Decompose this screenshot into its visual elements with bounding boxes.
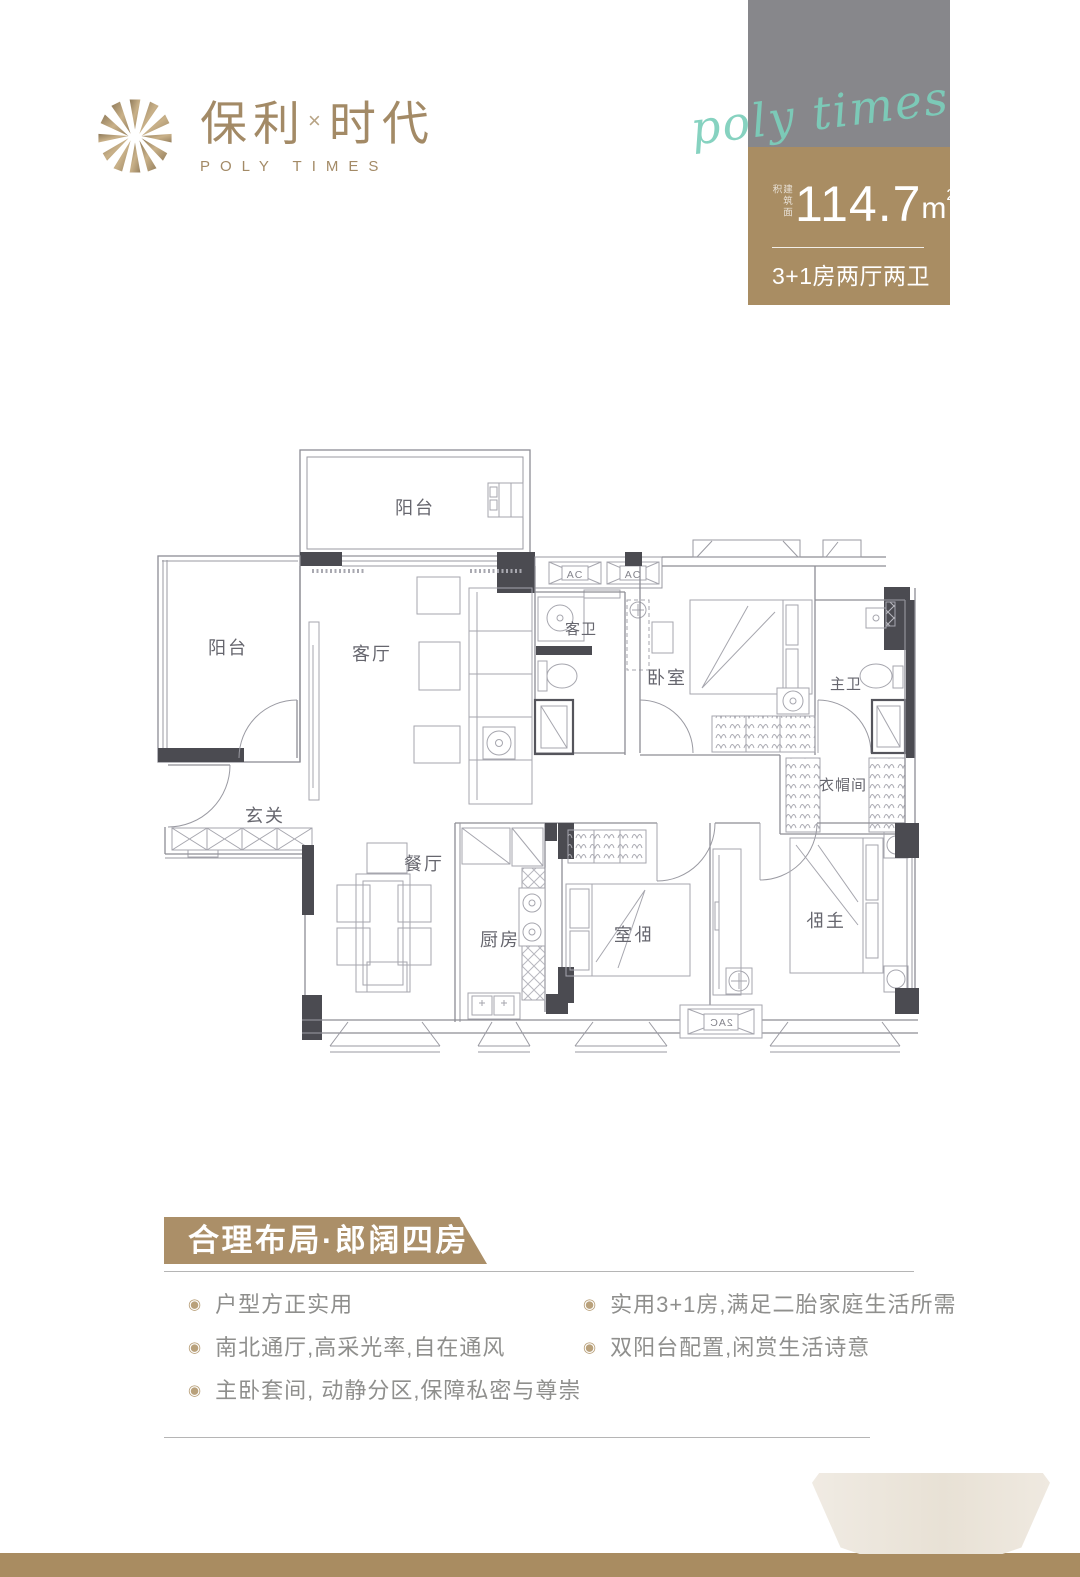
area-unit: m — [921, 176, 946, 242]
room-label-foyer: 玄关 — [245, 806, 285, 826]
bottom-wall: 2AC — [302, 1005, 918, 1052]
brand-zh-left: 保利 — [200, 97, 306, 150]
bullet-text: 实用3+1房,满足二胎家庭生活所需 — [610, 1292, 956, 1318]
brand-text: 保利×时代 POLY TIMES — [200, 93, 435, 175]
divider-line-bottom — [164, 1437, 870, 1438]
room-balcony-left: 阳台 — [158, 556, 300, 762]
room-living: 客厅 — [300, 566, 532, 804]
selling-points-right: ◉ 实用3+1房,满足二胎家庭生活所需 ◉ 双阳台配置,闲赏生活诗意 — [583, 1292, 983, 1378]
bullet-icon: ◉ — [188, 1378, 201, 1404]
room-foyer: 玄关 — [165, 765, 312, 858]
room-master-bedroom: 主卧 — [760, 823, 908, 992]
bullet-icon: ◉ — [583, 1335, 596, 1361]
ac-label-2: AC — [625, 569, 642, 581]
ac-label-1: AC — [567, 569, 584, 581]
room-label-bedroom-bottom: 卧室 — [612, 925, 652, 945]
area-row: 建筑面积 114.7 m 2 — [770, 176, 955, 242]
bullet-icon: ◉ — [188, 1292, 201, 1318]
bullet-text: 南北通厅,高采光率,自在通风 — [215, 1335, 505, 1361]
unit-spec: 3+1房两厅两卫 — [772, 257, 952, 291]
room-label-guest-bath: 客卫 — [565, 621, 597, 638]
brand-separator: × — [306, 108, 329, 133]
room-label-living: 客厅 — [352, 644, 392, 664]
selling-points-left: ◉ 户型方正实用 ◉ 南北通厅,高采光率,自在通风 ◉ 主卧套间, 动静分区,保… — [188, 1292, 568, 1421]
room-label-master-bath: 主卫 — [830, 676, 862, 693]
brand-name-en: POLY TIMES — [200, 158, 435, 175]
area-value: 114.7 — [795, 176, 921, 232]
room-kitchen: 厨房 — [455, 823, 568, 1022]
section-banner: 合理布局·郎阔四房 — [164, 1217, 487, 1264]
list-item: ◉ 实用3+1房,满足二胎家庭生活所需 — [583, 1292, 983, 1320]
room-closet: 衣帽间 — [780, 755, 905, 834]
room-label-dining: 餐厅 — [404, 854, 444, 874]
room-bedroom-bottom: 卧室 — [558, 823, 715, 1012]
room-bedroom-top: 卧室 — [625, 540, 910, 755]
brand-logo: 保利×时代 POLY TIMES — [92, 93, 435, 179]
bullet-text: 主卧套间, 动静分区,保障私密与尊崇 — [215, 1378, 581, 1404]
room-guest-bath: 客卫 — [535, 566, 673, 755]
brand-zh-right: 时代 — [329, 97, 435, 150]
starburst-icon — [92, 93, 178, 179]
poster-page: 保利×时代 POLY TIMES poly times 建筑面积 114.7 m… — [0, 0, 1080, 1577]
room-label-closet: 衣帽间 — [819, 777, 867, 794]
room-master-bath: 主卫 — [815, 600, 905, 753]
room-balcony-top: 阳台 — [300, 450, 530, 556]
room-label-kitchen: 厨房 — [480, 930, 520, 950]
bullet-text: 户型方正实用 — [215, 1292, 353, 1318]
section-title: 合理布局·郎阔四房 — [164, 1217, 487, 1264]
floor-plan-svg: 阳台 阳台 — [140, 420, 950, 1080]
list-item: ◉ 主卧套间, 动静分区,保障私密与尊崇 — [188, 1378, 568, 1406]
list-item: ◉ 双阳台配置,闲赏生活诗意 — [583, 1335, 983, 1363]
bullet-text: 双阳台配置,闲赏生活诗意 — [610, 1335, 870, 1361]
decorative-shape — [812, 1473, 1050, 1554]
list-item: ◉ 南北通厅,高采光率,自在通风 — [188, 1335, 568, 1363]
room-label-bedroom-top: 卧室 — [647, 668, 687, 688]
bullet-icon: ◉ — [583, 1292, 596, 1318]
room-label-balcony-top: 阳台 — [395, 498, 435, 518]
hallway-partition — [713, 849, 752, 995]
list-item: ◉ 户型方正实用 — [188, 1292, 568, 1320]
card-gray-panel — [748, 0, 950, 147]
ac-label-bottom: 2AC — [709, 1017, 732, 1029]
area-exponent: 2 — [946, 176, 955, 216]
brand-name-zh: 保利×时代 — [200, 93, 435, 152]
room-label-master-bedroom: 主卧 — [804, 911, 844, 931]
area-divider-line — [772, 247, 924, 248]
divider-line-top — [164, 1271, 914, 1272]
area-label-vertical: 建筑面积 — [770, 184, 791, 228]
bottom-gold-band — [0, 1553, 1080, 1577]
floor-plan: 阳台 阳台 — [140, 420, 950, 1085]
room-label-balcony-left: 阳台 — [208, 638, 248, 658]
bullet-icon: ◉ — [188, 1335, 201, 1361]
room-dining: 餐厅 — [302, 843, 444, 1040]
